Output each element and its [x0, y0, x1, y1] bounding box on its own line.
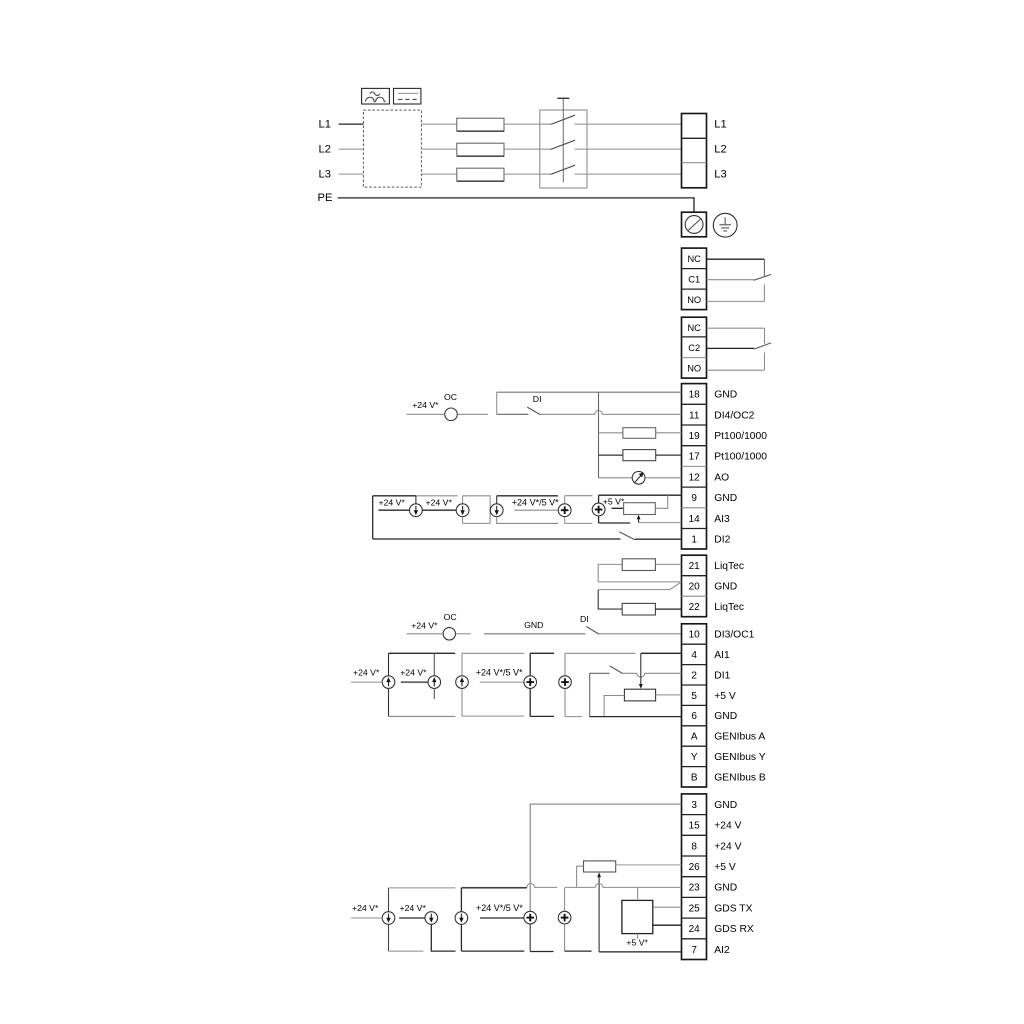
svg-text:+24 V*: +24 V* [400, 668, 427, 678]
svg-text:20: 20 [689, 582, 701, 593]
svg-text:Pt100/1000: Pt100/1000 [714, 431, 767, 442]
svg-text:3: 3 [691, 800, 697, 811]
svg-text:GDS TX: GDS TX [714, 903, 752, 914]
svg-text:GND: GND [714, 493, 737, 504]
svg-text:L2: L2 [714, 143, 726, 155]
svg-text:24: 24 [689, 924, 701, 935]
svg-text:+24 V*: +24 V* [400, 903, 427, 913]
svg-text:+24 V*/5 V*: +24 V*/5 V* [512, 497, 559, 507]
svg-text:AI1: AI1 [714, 650, 730, 661]
svg-text:NO: NO [687, 364, 701, 374]
svg-text:4: 4 [691, 650, 697, 661]
svg-text:5: 5 [691, 691, 697, 702]
svg-text:+24 V*: +24 V* [412, 400, 439, 410]
svg-text:1: 1 [691, 535, 697, 546]
svg-text:PE: PE [318, 192, 333, 204]
svg-text:DI: DI [580, 614, 589, 624]
svg-text:2: 2 [691, 670, 697, 681]
svg-text:GND: GND [714, 800, 737, 811]
svg-text:B: B [691, 772, 698, 783]
svg-text:26: 26 [689, 862, 701, 873]
svg-text:DI2: DI2 [714, 535, 730, 546]
svg-text:+24 V*/5 V*: +24 V*/5 V* [476, 903, 523, 913]
svg-text:LiqTec: LiqTec [714, 561, 744, 572]
svg-text:DI4/OC2: DI4/OC2 [714, 410, 754, 421]
svg-text:+24 V*: +24 V* [426, 497, 453, 507]
svg-text:+24 V*: +24 V* [411, 620, 438, 630]
svg-text:7: 7 [691, 945, 697, 956]
svg-text:GND: GND [714, 883, 737, 894]
svg-text:18: 18 [689, 390, 701, 401]
svg-text:+5 V*: +5 V* [603, 496, 625, 506]
svg-text:AI2: AI2 [714, 945, 730, 956]
svg-text:19: 19 [689, 431, 701, 442]
svg-text:C1: C1 [688, 274, 700, 284]
svg-text:+5 V: +5 V [714, 862, 736, 873]
svg-text:L3: L3 [319, 168, 331, 180]
svg-text:14: 14 [689, 514, 701, 525]
svg-text:LiqTec: LiqTec [714, 602, 744, 613]
svg-text:OC: OC [444, 392, 457, 402]
svg-text:Y: Y [691, 752, 698, 763]
svg-text:OC: OC [444, 612, 457, 622]
svg-text:25: 25 [689, 903, 701, 914]
svg-text:NC: NC [687, 323, 701, 333]
svg-text:GND: GND [714, 390, 737, 401]
svg-text:+5 V: +5 V [714, 691, 736, 702]
svg-text:17: 17 [689, 452, 701, 463]
svg-text:NO: NO [687, 295, 701, 305]
svg-text:GND: GND [714, 711, 737, 722]
svg-text:AO: AO [714, 472, 729, 483]
svg-text:+5 V*: +5 V* [626, 937, 648, 947]
svg-text:+24 V*: +24 V* [379, 497, 406, 507]
svg-text:8: 8 [691, 841, 697, 852]
svg-text:Pt100/1000: Pt100/1000 [714, 452, 767, 463]
svg-text:GND: GND [524, 620, 543, 630]
svg-text:DI: DI [533, 394, 542, 404]
svg-text:NC: NC [687, 254, 701, 264]
svg-text:GENIbus A: GENIbus A [714, 732, 765, 743]
svg-text:L1: L1 [714, 118, 726, 130]
svg-text:GENIbus Y: GENIbus Y [714, 752, 765, 763]
svg-text:15: 15 [689, 821, 701, 832]
svg-text:6: 6 [691, 711, 697, 722]
svg-text:+24 V*: +24 V* [353, 668, 380, 678]
svg-text:A: A [691, 732, 698, 743]
svg-text:9: 9 [691, 493, 697, 504]
svg-text:+24 V: +24 V [714, 841, 741, 852]
svg-text:L1: L1 [319, 118, 331, 130]
svg-text:GENIbus B: GENIbus B [714, 772, 766, 783]
svg-text:GDS RX: GDS RX [714, 924, 754, 935]
svg-text:10: 10 [689, 630, 701, 641]
svg-text:AI3: AI3 [714, 514, 730, 525]
svg-text:11: 11 [689, 410, 700, 421]
svg-text:+24 V*: +24 V* [352, 903, 379, 913]
svg-text:L2: L2 [319, 143, 331, 155]
svg-text:22: 22 [689, 602, 701, 613]
svg-text:DI3/OC1: DI3/OC1 [714, 630, 754, 641]
svg-text:GND: GND [714, 582, 737, 593]
svg-text:C2: C2 [688, 343, 700, 353]
svg-text:+24 V: +24 V [714, 821, 741, 832]
svg-text:23: 23 [689, 883, 701, 894]
svg-text:21: 21 [689, 561, 701, 572]
svg-text:12: 12 [689, 472, 701, 483]
svg-text:L3: L3 [714, 168, 726, 180]
svg-text:DI1: DI1 [714, 670, 730, 681]
svg-text:+24 V*/5 V*: +24 V*/5 V* [476, 668, 523, 678]
